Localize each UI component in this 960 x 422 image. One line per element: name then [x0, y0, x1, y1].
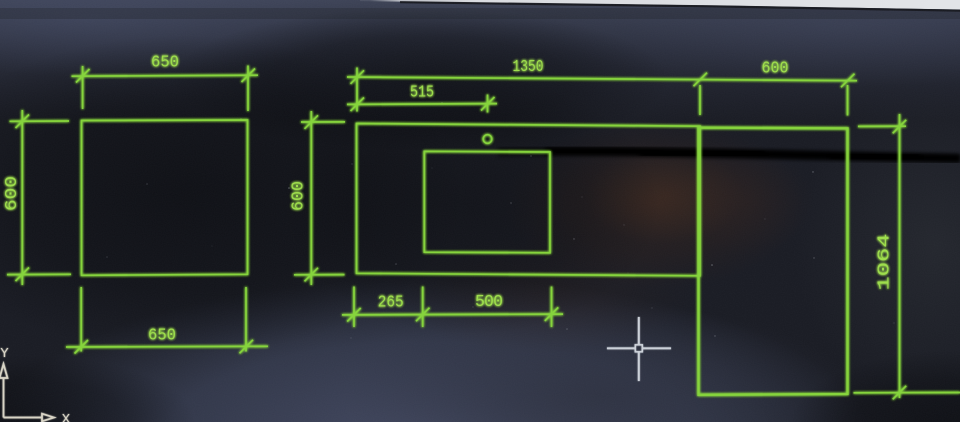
- svg-text:X: X: [62, 412, 71, 422]
- svg-text:515: 515: [410, 83, 434, 102]
- svg-text:650: 650: [148, 326, 176, 345]
- svg-text:600: 600: [762, 59, 789, 78]
- svg-text:265: 265: [378, 293, 404, 312]
- svg-text:Y: Y: [0, 346, 9, 362]
- svg-text:500: 500: [475, 292, 503, 311]
- svg-text:1350: 1350: [513, 57, 544, 76]
- svg-text:1064: 1064: [875, 233, 894, 290]
- svg-text:650: 650: [151, 53, 179, 72]
- svg-text:600: 600: [289, 181, 308, 211]
- svg-text:600: 600: [2, 176, 21, 211]
